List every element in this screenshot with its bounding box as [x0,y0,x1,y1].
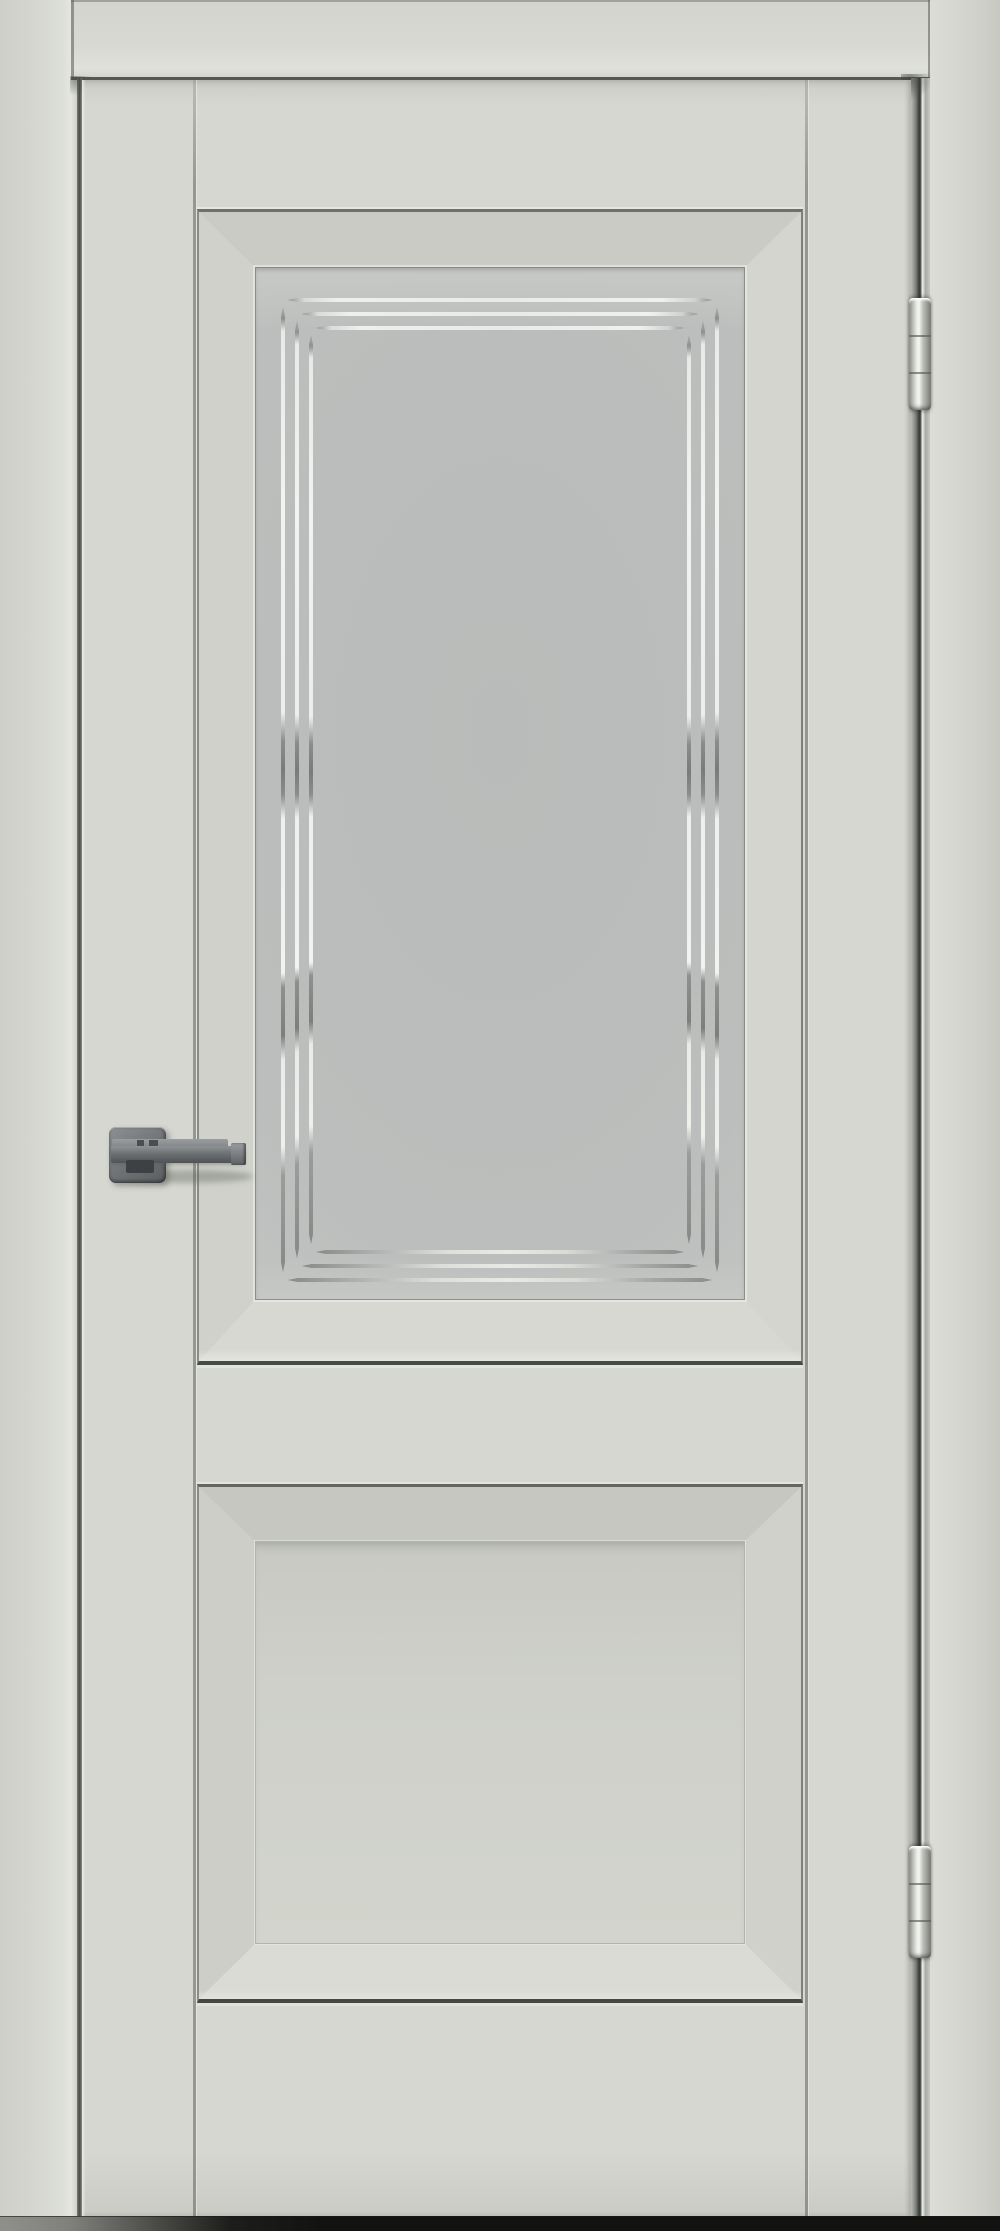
floor-shadow [0,2216,1000,2231]
glass-groove-left-middle [295,321,299,1258]
frame-joint-seam-right [928,0,930,78]
lower-panel-field [255,1541,745,1944]
glass-groove-left-outer [281,307,285,1272]
hinge-top [909,298,931,410]
handle-lever-end-cap [231,1143,246,1165]
glass-groove-right-outer [715,307,719,1272]
door-frame-top-casing [71,0,930,80]
stile-seam-right [805,80,808,2216]
upper-panel-bottom-highlight [199,1350,801,1361]
glass-groove-left-inner [309,335,313,1244]
door-frame-right-jamb [930,0,1000,2231]
glass-groove-bottom-outer [288,1278,712,1282]
glass-groove-bottom-middle [302,1264,698,1268]
glass-groove-right-middle [701,321,705,1258]
glass-groove-top-inner [316,326,684,330]
interior-door-photo [0,0,1000,2231]
door-frame-left-casing [0,0,77,2216]
glass-groove-right-inner [687,335,691,1244]
frame-joint-seam-left [71,0,74,78]
glass-groove-top-outer [288,298,712,302]
hinge-bottom [909,1846,931,1958]
frame-top-edge-line [71,0,930,2]
lower-panel-bottom-highlight [199,1990,801,1999]
glass-groove-bottom-inner [316,1250,684,1254]
glass-groove-top-middle [302,312,698,316]
handle-lever-jog [126,1160,154,1173]
frosted-glass-pane [255,267,745,1300]
